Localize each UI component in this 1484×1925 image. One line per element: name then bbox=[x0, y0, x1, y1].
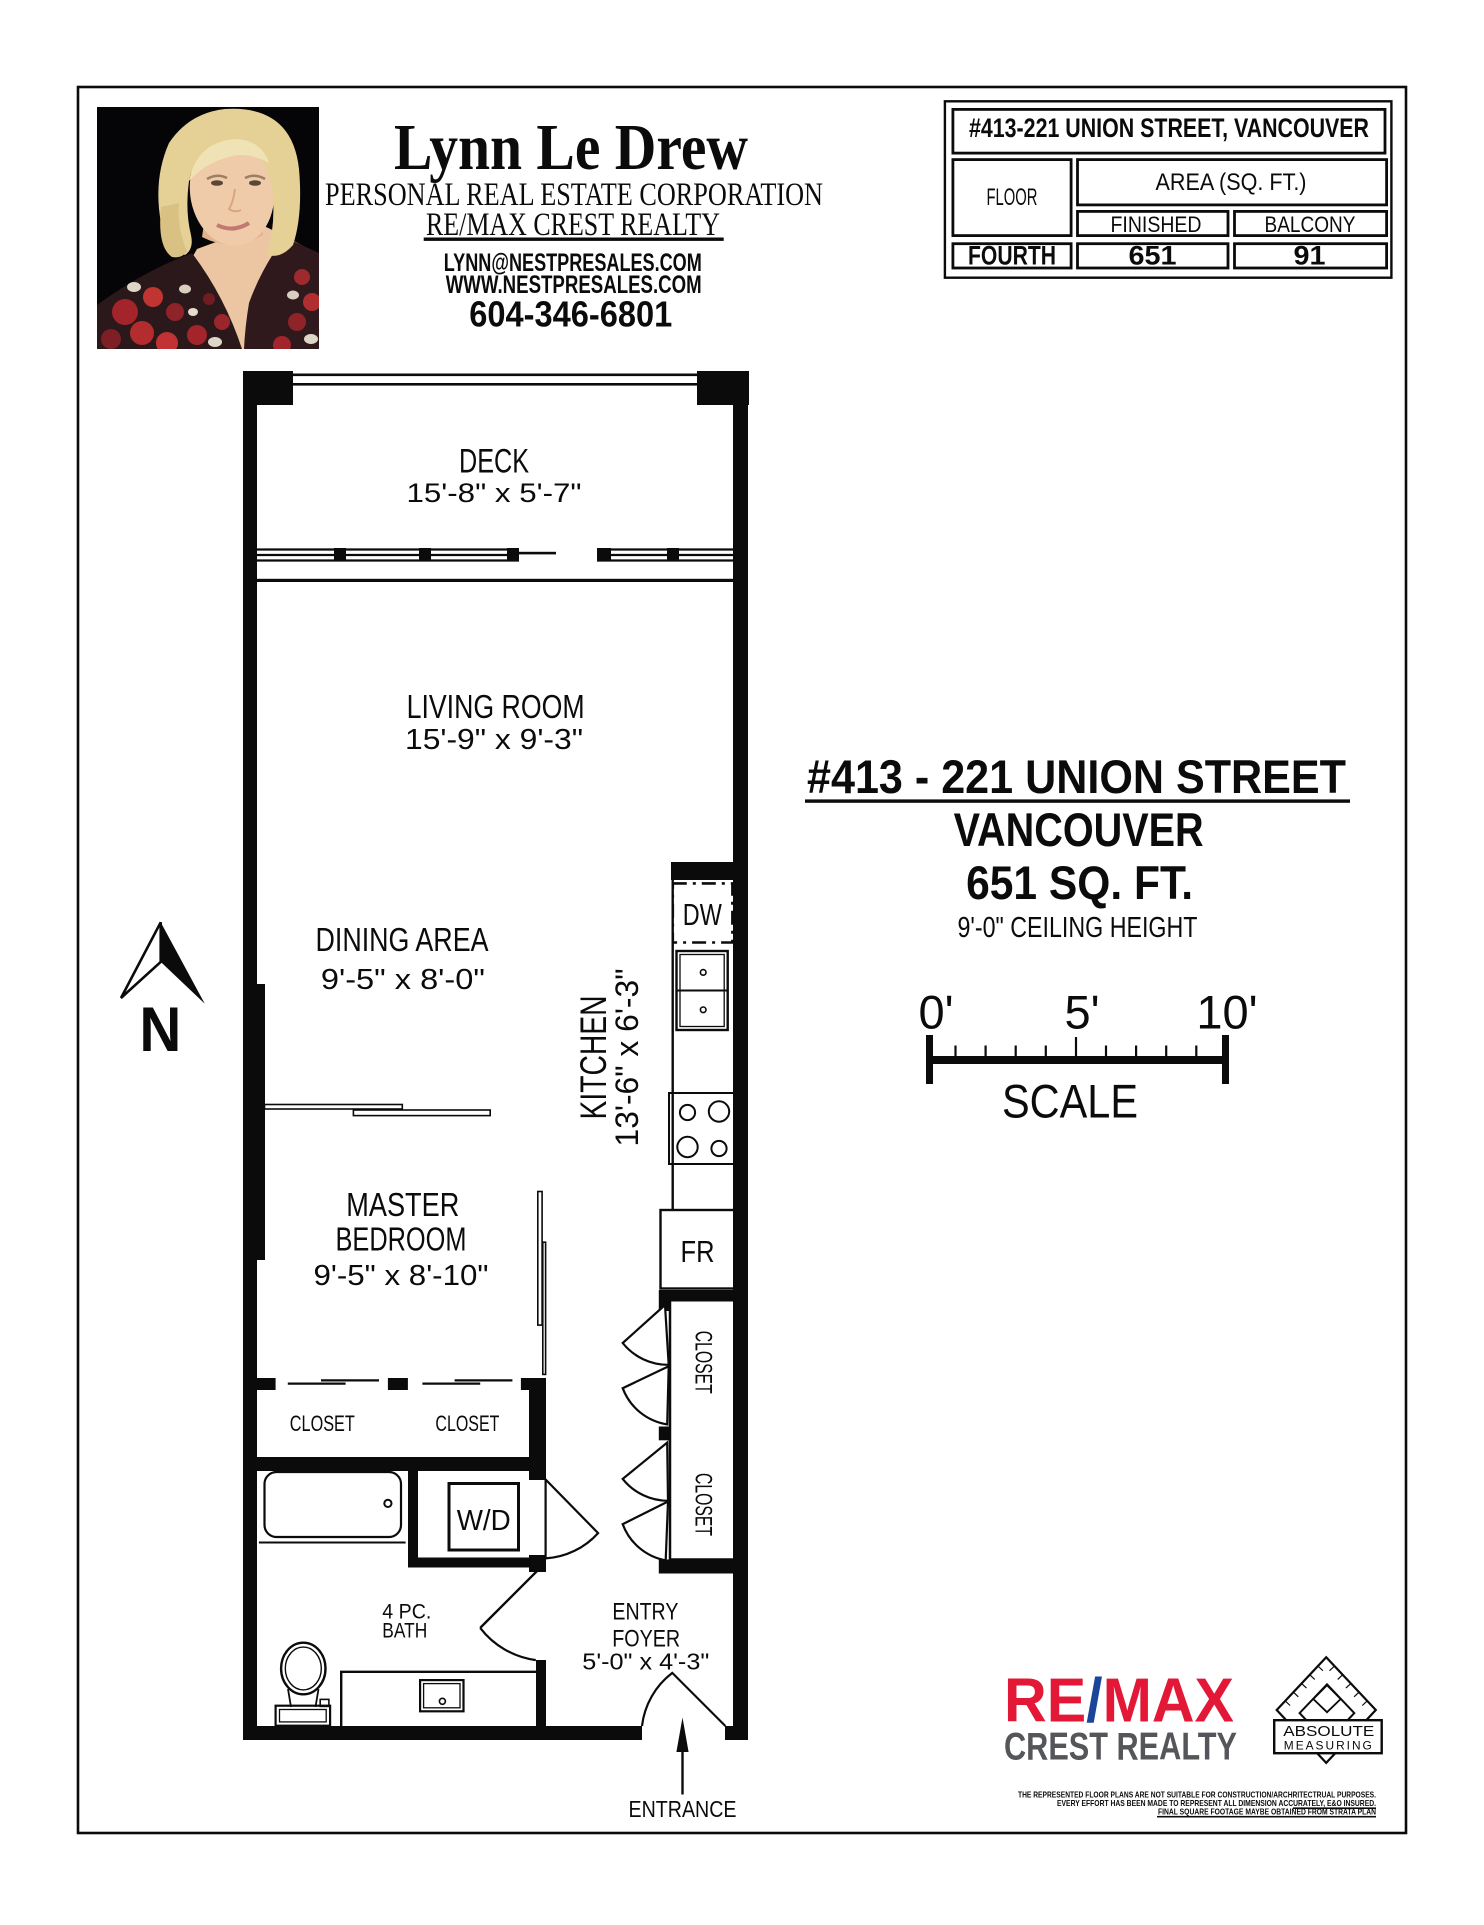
svg-text:BEDROOM: BEDROOM bbox=[336, 1221, 467, 1258]
svg-text:N: N bbox=[139, 995, 181, 1065]
svg-text:SCALE: SCALE bbox=[1002, 1075, 1138, 1128]
svg-text:CLOSET: CLOSET bbox=[290, 1411, 355, 1436]
svg-text:CLOSET: CLOSET bbox=[690, 1473, 717, 1536]
svg-text:13'-6" x 6'-3": 13'-6" x 6'-3" bbox=[609, 969, 645, 1147]
svg-text:ABSOLUTE: ABSOLUTE bbox=[1283, 1724, 1374, 1740]
svg-text:#413 - 221 UNION STREET: #413 - 221 UNION STREET bbox=[807, 750, 1346, 803]
svg-text:Lynn Le Drew: Lynn Le Drew bbox=[394, 111, 748, 184]
svg-text:651 SQ. FT.: 651 SQ. FT. bbox=[966, 856, 1193, 909]
svg-text:CLOSET: CLOSET bbox=[435, 1411, 499, 1436]
svg-text:KITCHEN: KITCHEN bbox=[573, 996, 614, 1120]
svg-text:MEASURING: MEASURING bbox=[1284, 1738, 1374, 1752]
svg-text:DW: DW bbox=[683, 897, 723, 932]
svg-text:ENTRANCE: ENTRANCE bbox=[629, 1796, 737, 1822]
svg-text:AREA (SQ. FT.): AREA (SQ. FT.) bbox=[1156, 169, 1307, 196]
svg-text:LIVING ROOM: LIVING ROOM bbox=[407, 688, 585, 725]
svg-text:FINISHED: FINISHED bbox=[1111, 212, 1202, 237]
svg-text:DECK: DECK bbox=[459, 443, 529, 481]
svg-text:0': 0' bbox=[918, 986, 953, 1039]
svg-text:10': 10' bbox=[1196, 986, 1257, 1039]
svg-text:VANCOUVER: VANCOUVER bbox=[954, 803, 1204, 856]
svg-text:604-346-6801: 604-346-6801 bbox=[469, 294, 672, 335]
svg-text:FOURTH: FOURTH bbox=[968, 241, 1056, 271]
svg-text:CREST REALTY: CREST REALTY bbox=[1004, 1726, 1237, 1769]
svg-text:BALCONY: BALCONY bbox=[1265, 212, 1356, 237]
svg-text:5': 5' bbox=[1064, 986, 1099, 1039]
svg-text:FINAL SQUARE FOOTAGE MAYBE OBT: FINAL SQUARE FOOTAGE MAYBE OBTAINED FROM… bbox=[1158, 1807, 1376, 1817]
svg-text:FLOOR: FLOOR bbox=[987, 184, 1038, 211]
svg-text:MASTER: MASTER bbox=[346, 1186, 459, 1223]
svg-text:5'-0" x 4'-3": 5'-0" x 4'-3" bbox=[582, 1648, 709, 1674]
svg-text:#413-221 UNION STREET, VANCOUV: #413-221 UNION STREET, VANCOUVER bbox=[969, 113, 1369, 143]
svg-text:9'-5" x 8'-10": 9'-5" x 8'-10" bbox=[314, 1260, 489, 1292]
svg-text:15'-9" x 9'-3": 15'-9" x 9'-3" bbox=[405, 724, 583, 756]
svg-text:9'-5" x 8'-0": 9'-5" x 8'-0" bbox=[321, 964, 485, 996]
svg-text:W/D: W/D bbox=[457, 1505, 511, 1537]
svg-text:DINING AREA: DINING AREA bbox=[316, 921, 489, 958]
svg-text:BATH: BATH bbox=[382, 1620, 427, 1643]
svg-text:651: 651 bbox=[1129, 241, 1177, 271]
svg-text:FR: FR bbox=[681, 1234, 715, 1269]
svg-text:15'-8" x 5'-7": 15'-8" x 5'-7" bbox=[407, 478, 582, 508]
svg-text:ENTRY: ENTRY bbox=[612, 1599, 678, 1626]
svg-text:91: 91 bbox=[1294, 241, 1326, 271]
svg-text:9'-0" CEILING HEIGHT: 9'-0" CEILING HEIGHT bbox=[958, 912, 1198, 944]
svg-text:CLOSET: CLOSET bbox=[690, 1331, 717, 1394]
